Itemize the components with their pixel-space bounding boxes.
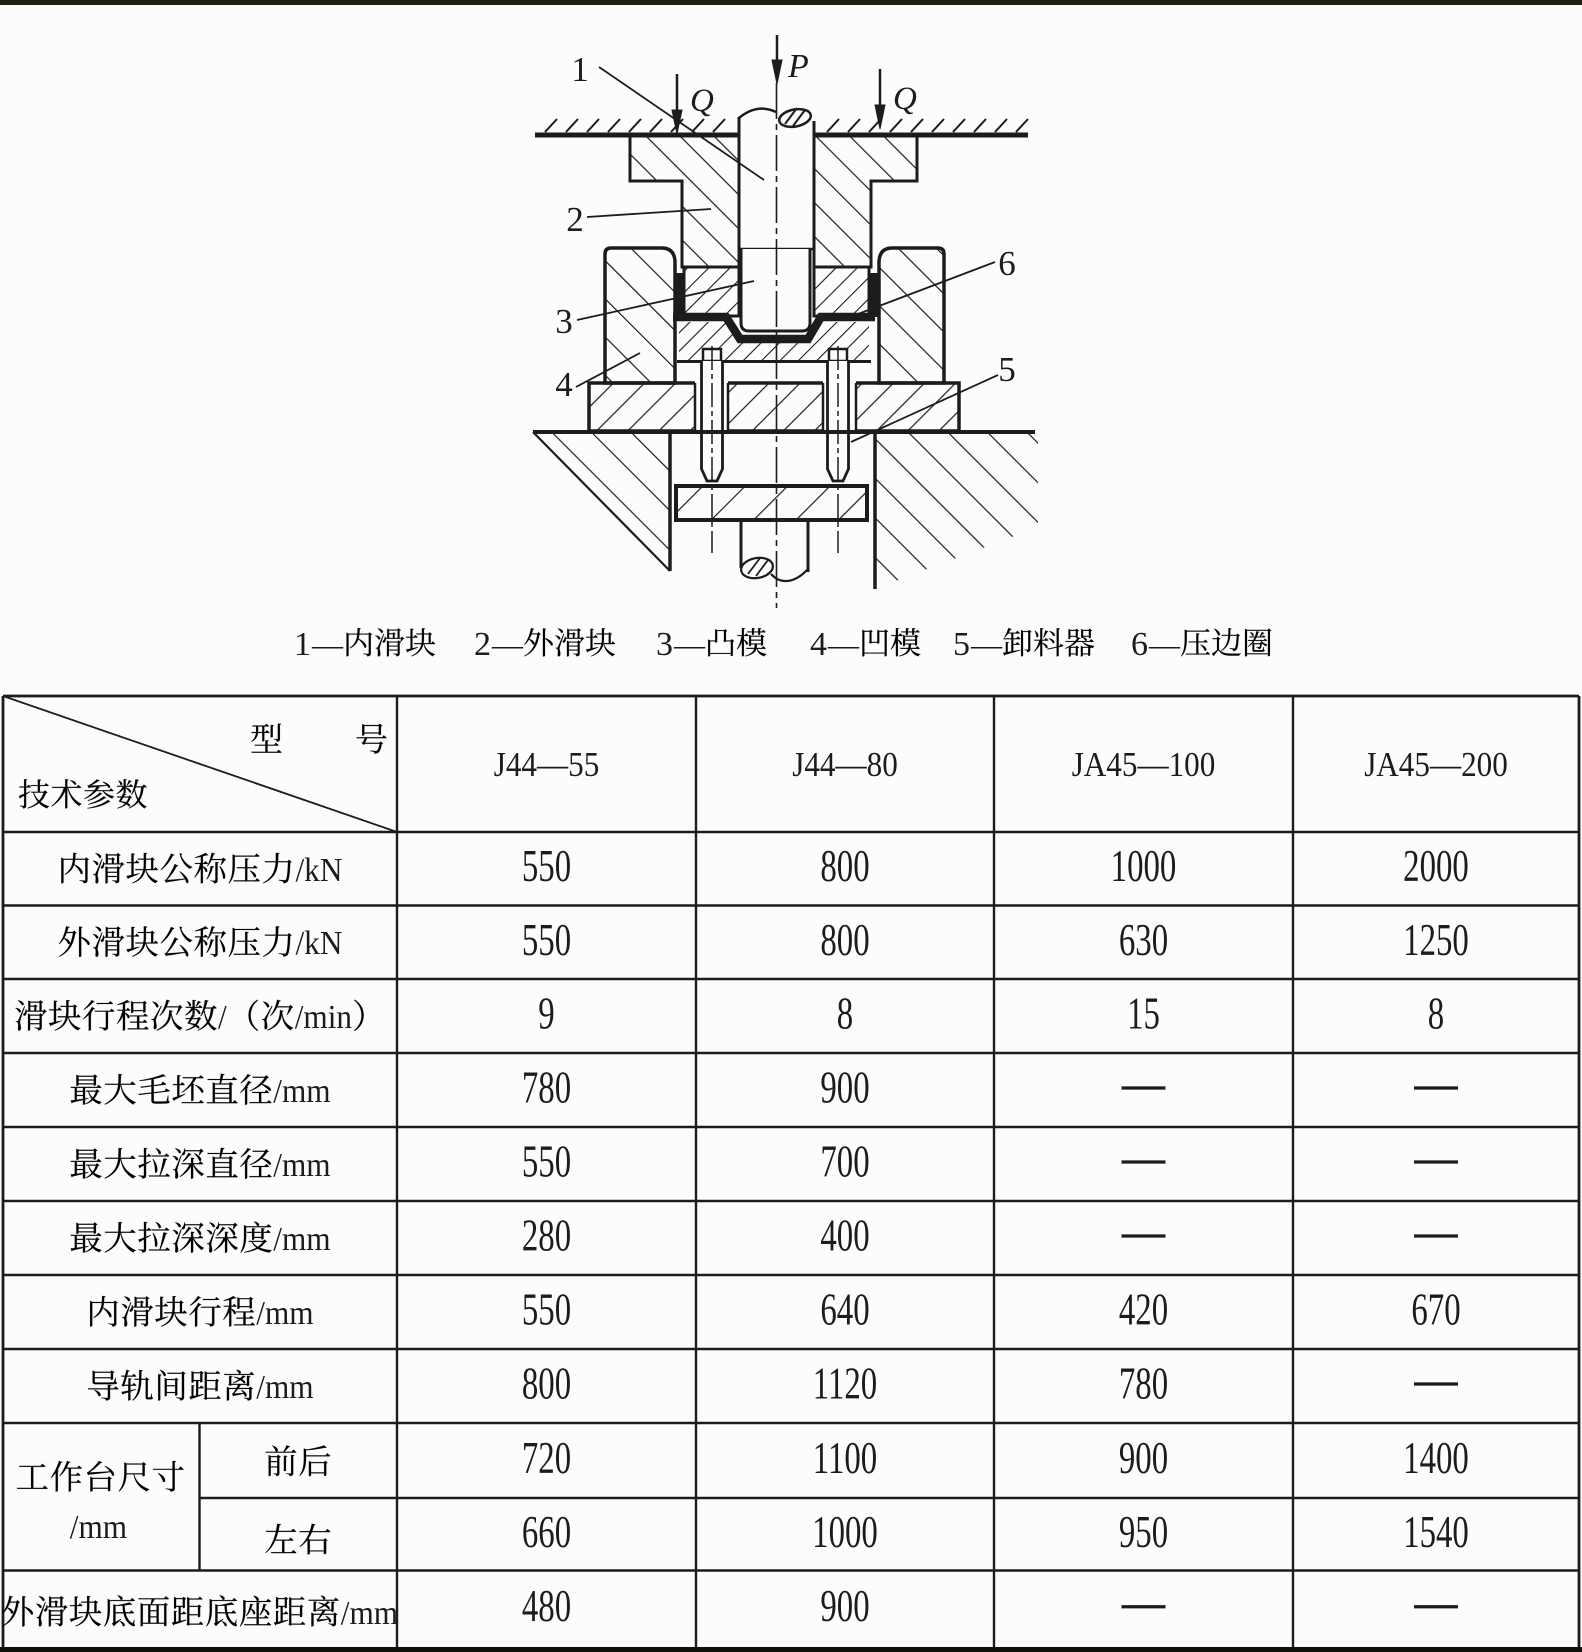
svg-text:780: 780 (522, 1063, 571, 1113)
svg-text:3: 3 (656, 626, 673, 663)
svg-text:2000: 2000 (1403, 841, 1469, 891)
svg-text:720: 720 (522, 1433, 571, 1483)
svg-text:5: 5 (953, 626, 970, 663)
svg-text:400: 400 (820, 1211, 869, 1261)
svg-text:/kN: /kN (296, 852, 343, 889)
svg-text:15: 15 (1127, 989, 1160, 1039)
svg-text:550: 550 (522, 1285, 571, 1335)
svg-text:—: — (970, 627, 1003, 662)
svg-text:1120: 1120 (813, 1359, 877, 1409)
svg-text:550: 550 (522, 915, 571, 965)
svg-text:950: 950 (1119, 1507, 1168, 1557)
svg-text:—: — (491, 627, 524, 662)
svg-text:/mm: /mm (341, 1595, 398, 1632)
svg-text:/mm: /mm (273, 1147, 330, 1184)
svg-text:—: — (311, 627, 344, 662)
svg-text:1: 1 (294, 626, 311, 663)
svg-text:J44—55: J44—55 (494, 745, 600, 784)
svg-text:5: 5 (998, 350, 1016, 389)
svg-text:1250: 1250 (1403, 915, 1469, 965)
svg-text:P: P (787, 48, 809, 85)
svg-text:4: 4 (555, 365, 573, 404)
svg-text:/mm: /mm (273, 1221, 330, 1258)
svg-text:1100: 1100 (813, 1433, 877, 1483)
svg-text:/: / (218, 999, 228, 1036)
svg-text:3: 3 (555, 302, 573, 341)
svg-text:8: 8 (837, 989, 853, 1039)
svg-text:Q: Q (893, 81, 917, 117)
svg-text:JA45—200: JA45—200 (1364, 745, 1508, 784)
svg-text:/mm: /mm (256, 1295, 313, 1332)
svg-text:780: 780 (1119, 1359, 1168, 1409)
svg-text:2: 2 (474, 626, 491, 663)
svg-text:1000: 1000 (812, 1507, 878, 1557)
svg-text:8: 8 (1428, 989, 1444, 1039)
svg-text:900: 900 (820, 1581, 869, 1631)
svg-text:1540: 1540 (1403, 1507, 1469, 1557)
svg-text:JA45—100: JA45—100 (1072, 745, 1216, 784)
svg-text:280: 280 (522, 1211, 571, 1261)
svg-text:1: 1 (571, 50, 589, 89)
svg-text:6: 6 (1131, 626, 1148, 663)
svg-text:800: 800 (820, 915, 869, 965)
svg-text:—: — (673, 627, 706, 662)
svg-text:700: 700 (820, 1137, 869, 1187)
svg-text:800: 800 (820, 841, 869, 891)
svg-text:/mm: /mm (273, 1073, 330, 1110)
svg-text:Q: Q (690, 83, 714, 119)
svg-text:900: 900 (1119, 1433, 1168, 1483)
svg-text:—: — (827, 627, 860, 662)
svg-text:660: 660 (522, 1507, 571, 1557)
svg-text:1400: 1400 (1403, 1433, 1469, 1483)
svg-text:6: 6 (998, 244, 1016, 283)
svg-text:/mm: /mm (70, 1509, 127, 1546)
svg-text:/min: /min (295, 999, 352, 1036)
svg-text:9: 9 (538, 989, 554, 1039)
svg-text:/kN: /kN (296, 925, 343, 962)
svg-text:900: 900 (820, 1063, 869, 1113)
svg-text:670: 670 (1411, 1285, 1460, 1335)
svg-text:—: — (1148, 627, 1181, 662)
svg-text:/mm: /mm (256, 1369, 313, 1406)
svg-text:480: 480 (522, 1581, 571, 1631)
svg-text:550: 550 (522, 841, 571, 891)
svg-text:J44—80: J44—80 (792, 745, 898, 784)
svg-text:2: 2 (566, 200, 584, 239)
svg-text:1000: 1000 (1111, 841, 1177, 891)
svg-text:4: 4 (810, 626, 827, 663)
svg-text:630: 630 (1119, 915, 1168, 965)
svg-text:800: 800 (522, 1359, 571, 1409)
svg-text:420: 420 (1119, 1285, 1168, 1335)
svg-text:640: 640 (820, 1285, 869, 1335)
svg-text:550: 550 (522, 1137, 571, 1187)
